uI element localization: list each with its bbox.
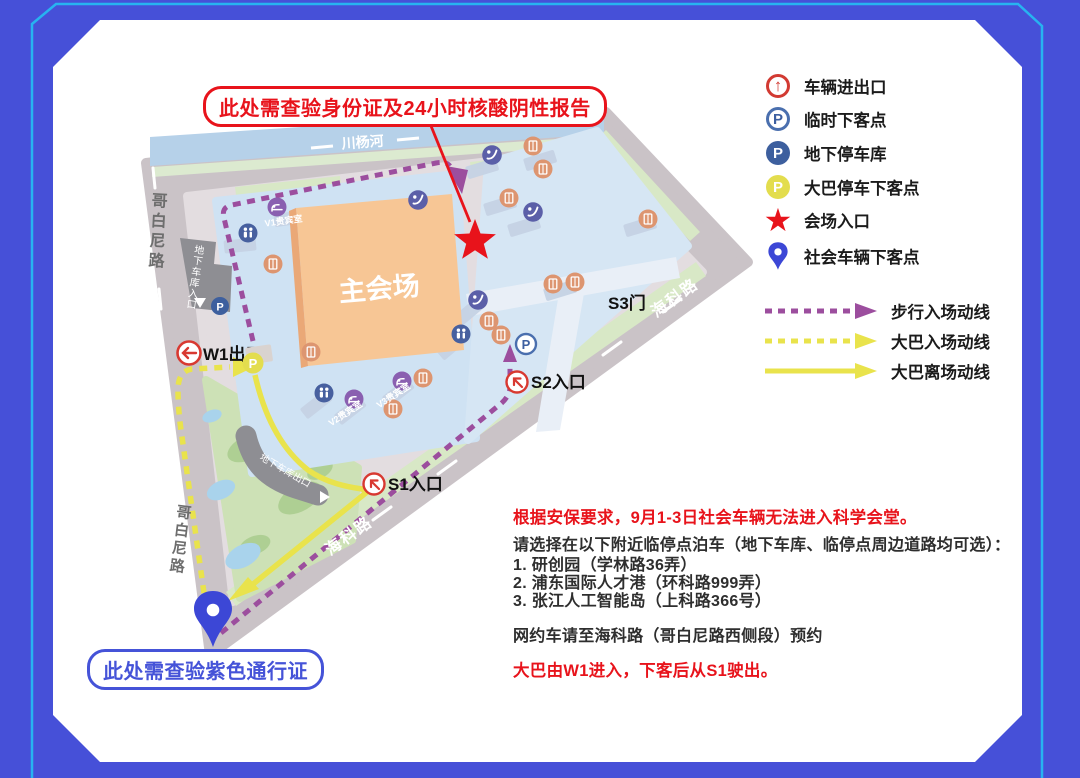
legend-route-bus-in: 大巴入场动线 <box>763 328 990 354</box>
lounge-icon <box>268 198 287 217</box>
walk-route-sample <box>763 302 881 320</box>
temp-dropoff-icon: P <box>766 107 790 131</box>
legend-item-venue-entrance: ★ 会场入口 <box>763 205 870 235</box>
temp-dropoff-marker: P <box>516 334 536 354</box>
security-notice: 根据安保要求，9月1-3日社会车辆无法进入科学会堂。 <box>513 509 1018 527</box>
gate-s1: S1入口 <box>364 474 443 495</box>
bus-dropoff-icon: P <box>766 175 790 199</box>
facility-icon <box>302 343 321 362</box>
parking-intro: 请选择在以下附近临停点泊车（地下车库、临停点周边道路均可选）： <box>513 537 1018 555</box>
walk-route-arrow <box>855 303 877 319</box>
poster-background: 川杨河 <box>0 0 1080 778</box>
legend-label: 地下停车库 <box>804 141 887 165</box>
parking-option: 3. 张江人工智能岛（上科路366号） <box>513 593 1018 611</box>
bus-in-route-arrow <box>855 333 877 349</box>
escalator-icon <box>408 190 428 210</box>
bus-dropoff-marker: P <box>243 353 264 374</box>
legend-item-vehicle-gate: ↑ 车辆进出口 <box>763 71 887 101</box>
legend-item-temp-dropoff: P 临时下客点 <box>763 104 887 134</box>
legend-label: 车辆进出口 <box>804 74 887 98</box>
gate-s3-label: S3门 <box>608 293 646 313</box>
venue-entrance-star-icon: ★ <box>764 204 793 236</box>
bus-out-route-arrow <box>855 363 877 379</box>
facility-icon <box>264 255 283 274</box>
facility-icon <box>524 137 543 156</box>
facility-icon <box>544 275 563 294</box>
legend-label: 会场入口 <box>804 208 870 232</box>
underground-garage-icon: P <box>766 141 790 165</box>
legend-label: 大巴入场动线 <box>891 329 990 353</box>
info-icon <box>239 224 258 243</box>
bus-route-notice: 大巴由W1进入，下客后从S1驶出。 <box>513 662 1018 680</box>
gate-s2-label: S2入口 <box>531 373 586 392</box>
parking-option: 1. 研创园（学林路36弄） <box>513 557 1018 575</box>
escalator-icon <box>523 202 543 222</box>
social-vehicle-pin-icon <box>763 241 793 271</box>
bus-in-route-sample <box>763 332 881 350</box>
pass-check-annotation: 此处需查验紫色通行证 <box>87 649 324 690</box>
id-check-annotation: 此处需查验身份证及24小时核酸阴性报告 <box>203 86 607 127</box>
legend-label: 步行入场动线 <box>891 299 990 323</box>
parking-option: 2. 浦东国际人才港（环科路999弄） <box>513 575 1018 593</box>
river-label: 川杨河 <box>340 133 384 152</box>
notice-block: 根据安保要求，9月1-3日社会车辆无法进入科学会堂。 请选择在以下附近临停点泊车… <box>513 509 1018 680</box>
legend-label: 临时下客点 <box>804 107 887 131</box>
vehicle-gate-icon: ↑ <box>766 74 790 98</box>
gebaini-road-upper-label: 哥白尼路 <box>145 192 165 273</box>
main-hall: 主会场 <box>289 194 464 368</box>
facility-icon <box>500 189 519 208</box>
info-icon <box>452 325 471 344</box>
legend-item-bus-dropoff: P 大巴停车下客点 <box>763 172 920 202</box>
facility-icon <box>534 160 553 179</box>
facility-icon <box>414 369 433 388</box>
legend-route-bus-out: 大巴离场动线 <box>763 358 990 384</box>
gate-s2: S2入口 <box>507 372 586 393</box>
legend-route-walk: 步行入场动线 <box>763 298 990 324</box>
facility-icon <box>639 210 658 229</box>
svg-text:P: P <box>249 356 258 371</box>
legend-label: 社会车辆下客点 <box>804 244 920 268</box>
legend-label: 大巴停车下客点 <box>804 175 920 199</box>
info-icon <box>315 384 334 403</box>
gate-s1-label: S1入口 <box>388 475 443 494</box>
svg-text:P: P <box>216 302 223 314</box>
ride-hailing-notice: 网约车请至海科路（哥白尼路西侧段）预约 <box>513 628 1018 646</box>
svg-text:P: P <box>522 337 531 352</box>
legend-item-social-vehicle: 社会车辆下客点 <box>763 241 920 271</box>
legend-item-underground-garage: P 地下停车库 <box>763 138 887 168</box>
facility-icon <box>566 273 585 292</box>
bus-out-route-sample <box>763 362 881 380</box>
legend-label: 大巴离场动线 <box>891 359 990 383</box>
facility-icon <box>492 326 511 345</box>
escalator-icon <box>482 145 502 165</box>
escalator-icon <box>468 290 488 310</box>
